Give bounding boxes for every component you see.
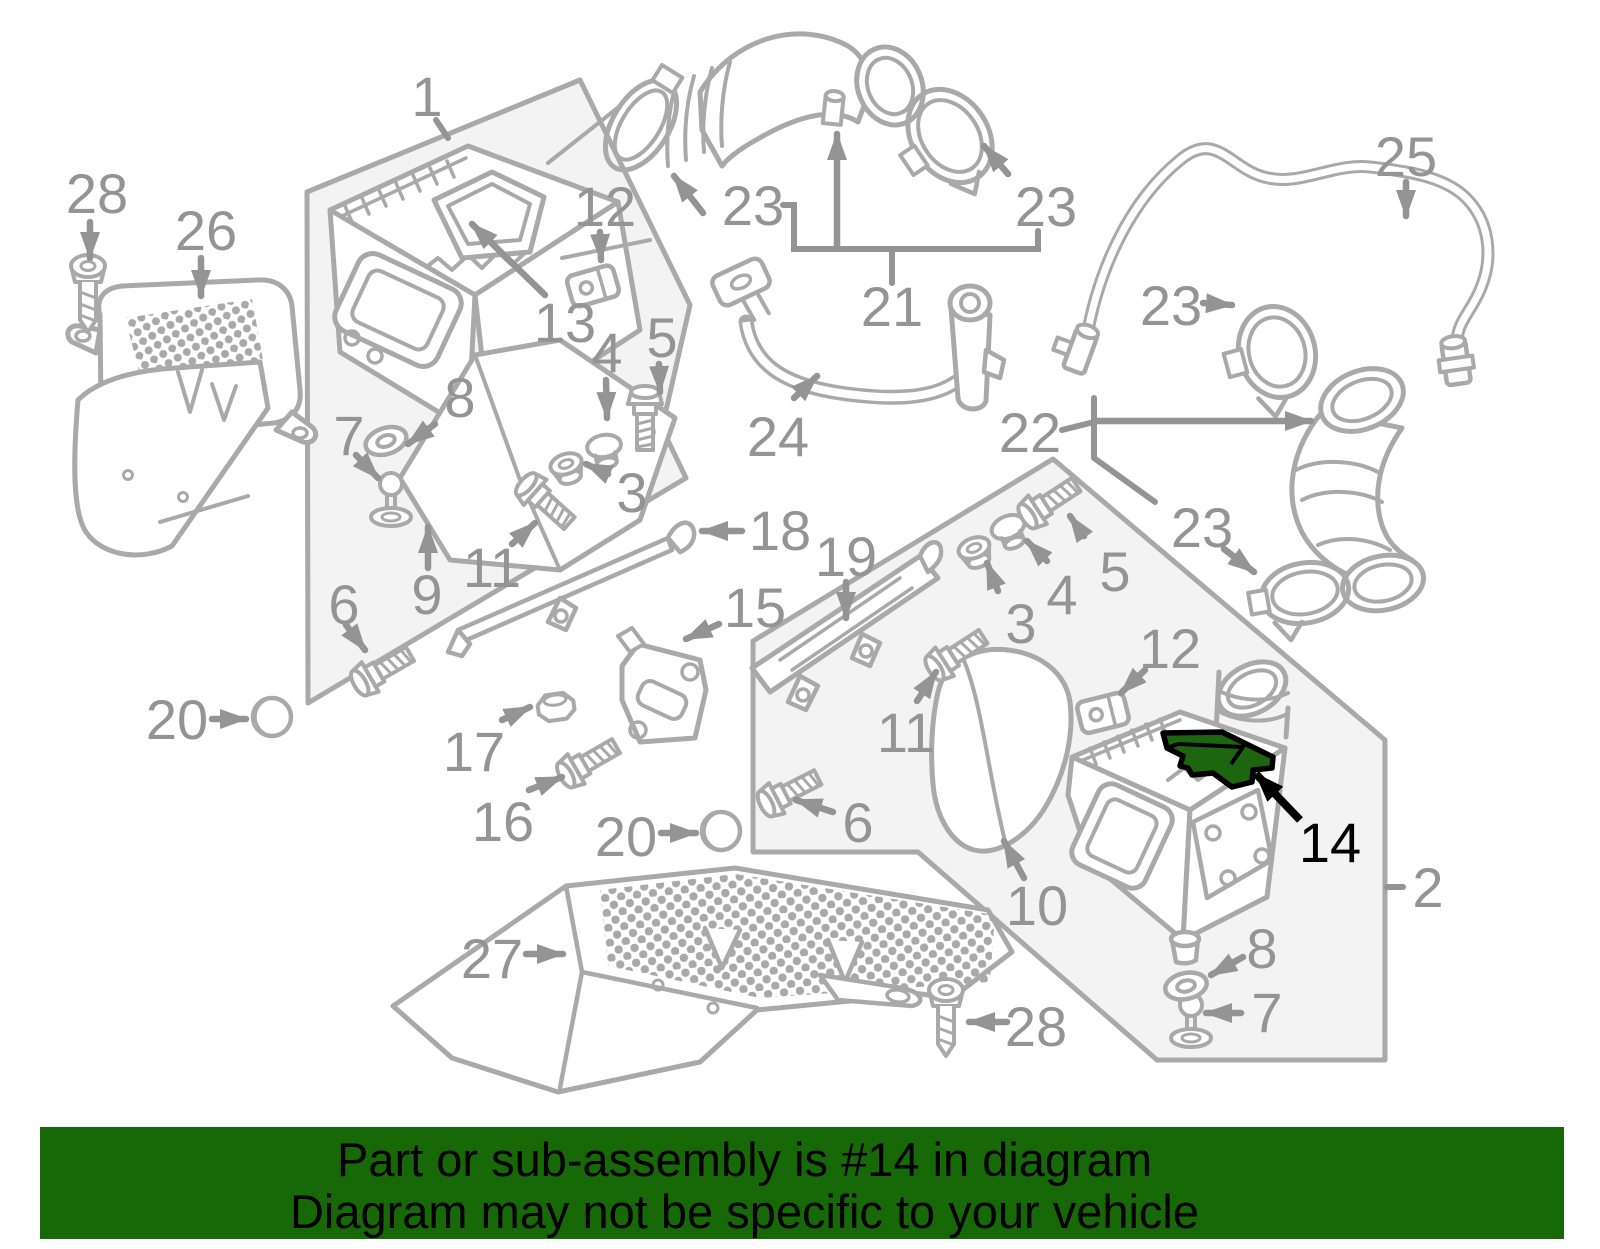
banner-line-2: Diagram may not be specific to your vehi… [40,1186,1449,1238]
callout-23-upper-right: 23 [1015,175,1077,238]
nut-17 [536,692,575,723]
callout-18: 18 [749,499,811,562]
callout-14-highlighted: 14 [1299,811,1361,874]
callout-22: 22 [999,401,1061,464]
callout-5-left: 5 [646,306,677,369]
callout-7-left: 7 [333,404,364,467]
callout-27: 27 [461,927,523,990]
callout-24: 24 [747,405,809,468]
arrow-16 [529,777,562,790]
callout-21: 21 [861,275,923,338]
grommet-20-left [253,698,291,736]
callout-6-bottom: 6 [842,791,873,854]
callout-17: 17 [443,720,505,783]
callout-11-right: 11 [877,701,935,764]
hose-clamp-23-right-upper [1215,298,1330,426]
hose-24 [710,256,1004,409]
parts-diagram-page: 1 28 26 12 13 4 5 8 7 3 11 9 6 17 16 20 … [0,0,1600,1249]
callout-7-right: 7 [1251,981,1282,1044]
callout-16: 16 [472,790,534,853]
callout-4-right: 4 [1046,563,1077,626]
callout-2: 2 [1412,856,1443,919]
intake-hose-21 [667,34,934,166]
callout-23-right-upper: 23 [1140,274,1202,337]
callout-3-left: 3 [616,461,647,524]
hose-nipple [823,90,844,125]
callout-13: 13 [534,291,596,354]
screw-28-bottom [929,979,963,1056]
arrow-17 [502,707,530,720]
leader-23-21-bracket [783,205,1038,283]
callout-4-left: 4 [591,321,622,384]
callout-10: 10 [1006,874,1068,937]
highlight-banner: Part or sub-assembly is #14 in diagram D… [40,1127,1564,1239]
callout-23-right-lower: 23 [1171,496,1233,559]
callout-8-right: 8 [1246,917,1277,980]
callout-5-right: 5 [1099,540,1130,603]
parts-diagram-svg: 1 28 26 12 13 4 5 8 7 3 11 9 6 17 16 20 … [0,0,1600,1127]
bracket-15 [618,628,706,742]
grommet-20-bottom [702,812,740,850]
callout-8-left: 8 [444,366,475,429]
callout-25: 25 [1375,125,1437,188]
callout-12-left: 12 [574,175,636,238]
callout-11-left: 11 [463,536,521,599]
bolt-16 [552,731,624,792]
callout-28-left: 28 [66,162,128,225]
callout-20-bottom: 20 [595,805,657,868]
callout-3-right: 3 [1005,592,1036,655]
callout-26: 26 [175,199,237,262]
banner-line-1: Part or sub-assembly is #14 in diagram [40,1134,1449,1186]
callout-15: 15 [724,576,786,639]
arrow-23-upper-left [674,176,703,213]
duct-elbow-22 [1292,357,1429,618]
callout-28-bottom: 28 [1005,995,1067,1058]
callout-23-upper-left: 23 [722,174,784,237]
air-inlet-duct-26 [68,280,316,555]
callout-20-left: 20 [146,688,208,751]
arrow-15 [686,624,719,639]
callout-9: 9 [411,563,442,626]
arrow-23-right-upper [1203,303,1232,305]
callout-1: 1 [411,65,442,128]
callout-19: 19 [815,525,877,588]
arrow-4-left [606,380,607,418]
callout-12-right: 12 [1139,617,1201,680]
callout-6-left: 6 [328,573,359,636]
